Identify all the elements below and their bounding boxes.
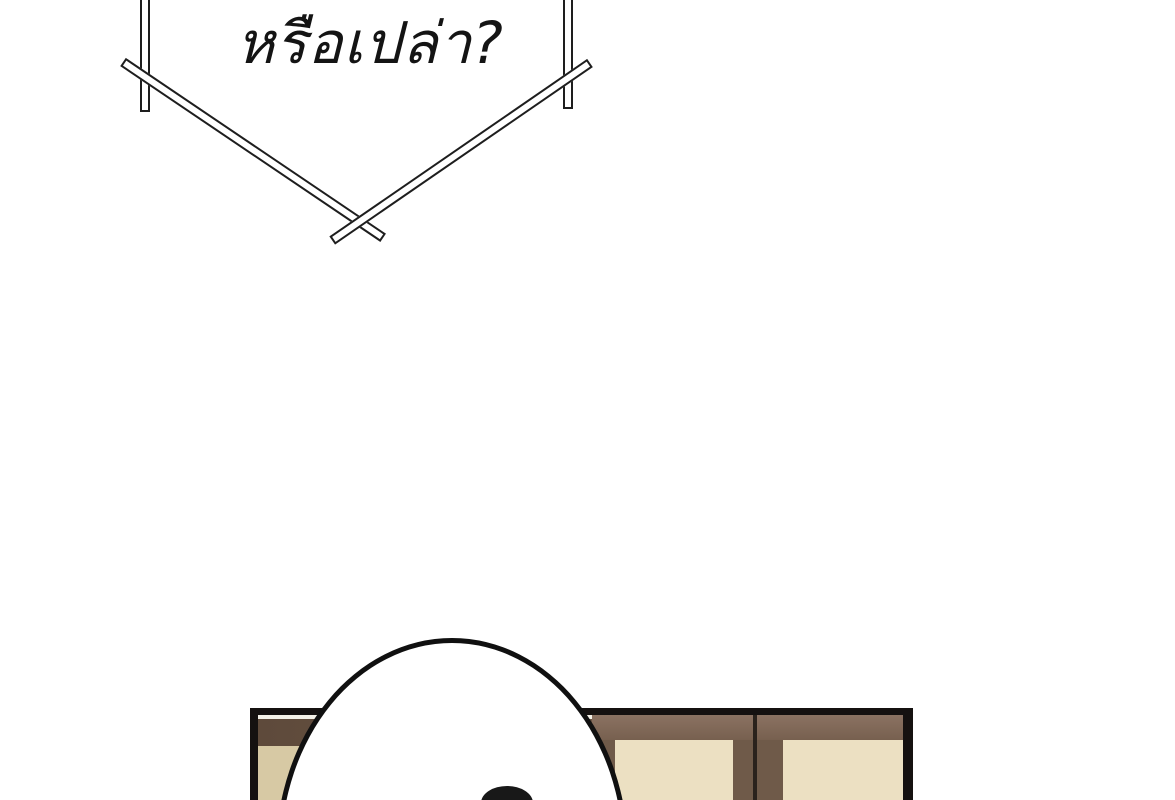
bubble-stroke-right-vertical: [563, 0, 573, 109]
right-section-rail: [592, 715, 903, 740]
comic-panel: หรือเปล่า?: [0, 0, 1175, 800]
bubble-stroke-left-vertical: [140, 0, 150, 112]
character-head: [276, 638, 628, 800]
door-seam: [753, 715, 757, 800]
speech-text: หรือเปล่า?: [222, 0, 518, 90]
door-panel-inner-left: [615, 740, 733, 800]
door-panel-inner-right: [783, 740, 903, 800]
cabinet-right-section: [592, 715, 903, 800]
